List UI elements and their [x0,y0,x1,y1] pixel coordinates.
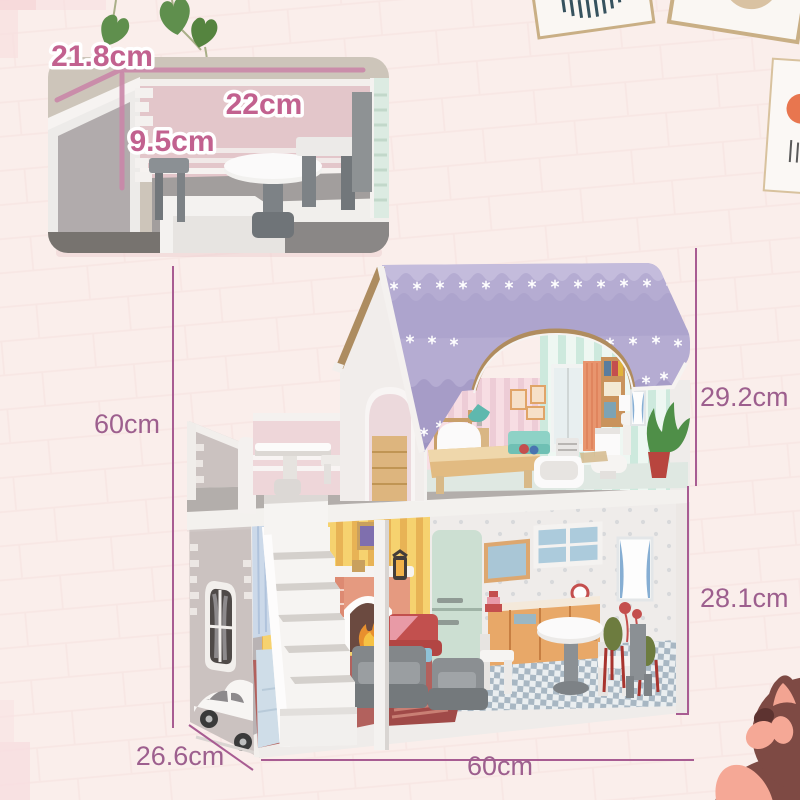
svg-text:29.2cm: 29.2cm [700,382,789,412]
svg-text:28.1cm: 28.1cm [700,583,789,613]
svg-text:26.6cm: 26.6cm [136,741,225,771]
svg-text:9.5cm: 9.5cm [129,125,214,158]
svg-text:60cm: 60cm [94,409,160,439]
svg-text:60cm: 60cm [467,751,533,781]
svg-text:22cm: 22cm [226,88,303,121]
svg-text:21.8cm: 21.8cm [51,40,153,73]
